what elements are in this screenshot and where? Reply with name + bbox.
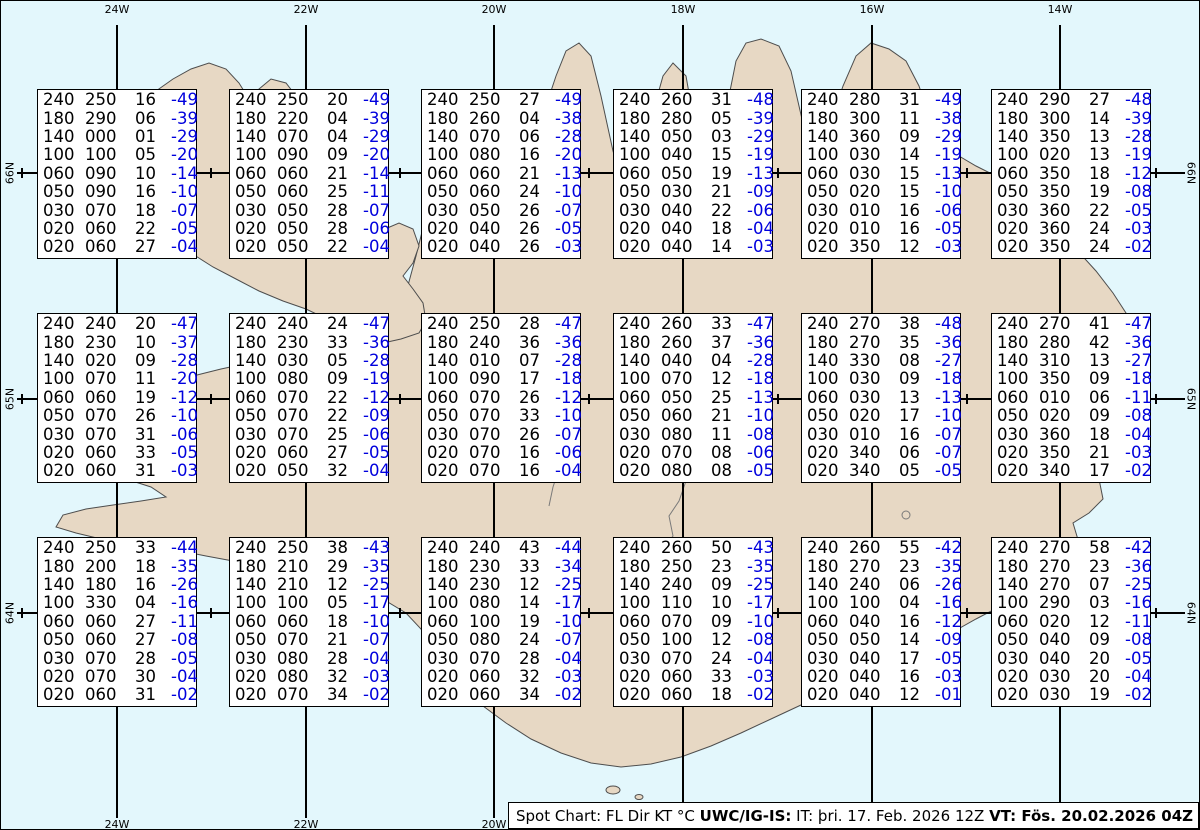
spot-box: 24025038-4318021029-3514021012-251001000… [229, 537, 389, 707]
temp-value: -19 [363, 370, 390, 388]
spot-row: 02006027-05 [235, 444, 383, 462]
kt-value: 13 [1089, 146, 1125, 164]
dir-value: 010 [469, 352, 519, 370]
fl-value: 180 [235, 334, 277, 352]
kt-value: 21 [519, 165, 555, 183]
temp-value: -06 [363, 220, 390, 238]
spot-row: 03005026-07 [427, 202, 575, 220]
temp-value: -12 [171, 389, 198, 407]
fl-value: 030 [807, 202, 849, 220]
kt-value: 26 [519, 389, 555, 407]
kt-value: 04 [711, 352, 747, 370]
fl-value: 060 [427, 165, 469, 183]
spot-row: 14018016-26 [43, 576, 191, 594]
dir-value: 360 [849, 128, 899, 146]
temp-value: -29 [171, 128, 198, 146]
dir-value: 300 [1039, 110, 1089, 128]
kt-value: 09 [327, 146, 363, 164]
dir-value: 060 [469, 165, 519, 183]
fl-value: 020 [997, 668, 1039, 686]
dir-value: 240 [469, 334, 519, 352]
kt-value: 08 [711, 444, 747, 462]
kt-value: 27 [327, 444, 363, 462]
longitude-label-bottom: 20W [482, 818, 507, 830]
temp-value: -16 [1125, 594, 1152, 612]
kt-value: 09 [1089, 407, 1125, 425]
spot-row: 02003020-04 [997, 668, 1145, 686]
temp-value: -19 [935, 146, 962, 164]
longitude-label-top: 20W [482, 3, 507, 16]
spot-row: 24026031-48 [619, 91, 767, 109]
fl-value: 100 [997, 370, 1039, 388]
kt-value: 24 [327, 315, 363, 333]
kt-value: 04 [327, 128, 363, 146]
spot-box: 24024024-4718023033-3614003005-281000800… [229, 313, 389, 483]
kt-value: 18 [1089, 165, 1125, 183]
fl-value: 140 [619, 352, 661, 370]
temp-value: -03 [363, 668, 390, 686]
spot-row: 24025027-49 [427, 91, 575, 109]
fl-value: 050 [619, 631, 661, 649]
caption-segment: IT: þri. 17. Feb. 2026 12Z [791, 807, 989, 825]
temp-value: -20 [171, 370, 198, 388]
dir-value: 350 [1039, 370, 1089, 388]
kt-value: 13 [899, 389, 935, 407]
fl-value: 140 [43, 576, 85, 594]
dir-value: 070 [85, 668, 135, 686]
fl-value: 140 [807, 576, 849, 594]
fl-value: 030 [235, 202, 277, 220]
dir-value: 100 [85, 146, 135, 164]
dir-value: 030 [661, 183, 711, 201]
latitude-label: 65N [4, 388, 17, 410]
spot-row: 14002009-28 [43, 352, 191, 370]
fl-value: 180 [235, 110, 277, 128]
kt-value: 14 [899, 631, 935, 649]
temp-value: -10 [935, 183, 962, 201]
spot-row: 02007030-04 [43, 668, 191, 686]
dir-value: 070 [469, 426, 519, 444]
temp-value: -49 [171, 91, 198, 109]
fl-value: 020 [235, 668, 277, 686]
spot-row: 18027023-35 [807, 558, 955, 576]
spot-row: 06003015-13 [807, 165, 955, 183]
kt-value: 58 [1089, 539, 1125, 557]
temp-value: -06 [555, 444, 582, 462]
spot-row: 24026055-42 [807, 539, 955, 557]
spot-row: 03008028-04 [235, 650, 383, 668]
dir-value: 250 [469, 315, 519, 333]
dir-value: 080 [469, 631, 519, 649]
fl-value: 060 [619, 165, 661, 183]
dir-value: 040 [849, 613, 899, 631]
temp-value: -37 [171, 334, 198, 352]
dir-value: 030 [849, 165, 899, 183]
spot-row: 02006031-03 [43, 462, 191, 480]
fl-value: 240 [43, 539, 85, 557]
dir-value: 060 [661, 668, 711, 686]
temp-value: -11 [171, 613, 198, 631]
kt-value: 11 [135, 370, 171, 388]
spot-row: 18026037-36 [619, 334, 767, 352]
kt-value: 12 [1089, 613, 1125, 631]
temp-value: -47 [747, 315, 774, 333]
temp-value: -20 [363, 146, 390, 164]
temp-value: -25 [747, 576, 774, 594]
spot-row: 06007009-10 [619, 613, 767, 631]
dir-value: 230 [85, 334, 135, 352]
temp-value: -43 [363, 539, 390, 557]
dir-value: 050 [277, 238, 327, 256]
spot-row: 02008032-03 [235, 668, 383, 686]
dir-value: 360 [1039, 426, 1089, 444]
kt-value: 04 [519, 110, 555, 128]
fl-value: 050 [807, 407, 849, 425]
spot-row: 02004014-03 [619, 238, 767, 256]
longitude-label-top: 18W [671, 3, 696, 16]
fl-value: 050 [807, 631, 849, 649]
dir-value: 260 [469, 110, 519, 128]
temp-value: -42 [935, 539, 962, 557]
temp-value: -29 [935, 128, 962, 146]
fl-value: 020 [43, 686, 85, 704]
longitude-label-bottom: 22W [294, 818, 319, 830]
dir-value: 090 [277, 146, 327, 164]
kt-value: 22 [1089, 202, 1125, 220]
caption-segment: Spot Chart: FL Dir KT °C [516, 807, 700, 825]
kt-value: 34 [519, 686, 555, 704]
kt-value: 20 [327, 91, 363, 109]
dir-value: 010 [849, 202, 899, 220]
temp-value: -03 [747, 238, 774, 256]
temp-value: -49 [935, 91, 962, 109]
dir-value: 050 [661, 128, 711, 146]
graticule-tick [1155, 394, 1157, 404]
temp-value: -08 [1125, 183, 1152, 201]
dir-value: 250 [277, 91, 327, 109]
graticule-tick [966, 168, 968, 178]
spot-row: 14035013-28 [997, 128, 1145, 146]
dir-value: 020 [849, 407, 899, 425]
fl-value: 140 [997, 352, 1039, 370]
fl-value: 240 [43, 91, 85, 109]
dir-value: 060 [85, 220, 135, 238]
fl-value: 240 [235, 315, 277, 333]
fl-value: 240 [43, 315, 85, 333]
temp-value: -04 [1125, 426, 1152, 444]
fl-value: 020 [997, 444, 1039, 462]
spot-row: 18027035-36 [807, 334, 955, 352]
spot-row: 06009010-14 [43, 165, 191, 183]
temp-value: -10 [555, 407, 582, 425]
spot-row: 06007026-12 [427, 389, 575, 407]
caption-segment: VT: Fös. 20.02.2026 04Z [989, 807, 1193, 825]
fl-value: 180 [43, 558, 85, 576]
fl-value: 020 [807, 686, 849, 704]
spot-row: 18023010-37 [43, 334, 191, 352]
dir-value: 330 [85, 594, 135, 612]
spot-row: 14027007-25 [997, 576, 1145, 594]
graticule-tick [210, 608, 212, 618]
spot-row: 24025033-44 [43, 539, 191, 557]
temp-value: -10 [555, 613, 582, 631]
kt-value: 26 [135, 407, 171, 425]
kt-value: 31 [711, 91, 747, 109]
spot-row: 18030011-38 [807, 110, 955, 128]
dir-value: 100 [661, 631, 711, 649]
temp-value: -03 [1125, 444, 1152, 462]
kt-value: 42 [1089, 334, 1125, 352]
dir-value: 260 [661, 91, 711, 109]
kt-value: 22 [327, 407, 363, 425]
fl-value: 100 [235, 370, 277, 388]
fl-value: 100 [997, 594, 1039, 612]
graticule-tick [21, 168, 23, 178]
spot-box: 24025016-4918029006-3914000001-291001000… [37, 89, 197, 259]
fl-value: 050 [43, 631, 85, 649]
kt-value: 21 [711, 183, 747, 201]
dir-value: 070 [469, 407, 519, 425]
kt-value: 27 [135, 613, 171, 631]
dir-value: 060 [85, 238, 135, 256]
kt-value: 08 [711, 462, 747, 480]
dir-value: 280 [849, 91, 899, 109]
dir-value: 030 [277, 352, 327, 370]
dir-value: 090 [469, 370, 519, 388]
temp-value: -05 [747, 462, 774, 480]
spot-row: 03036018-04 [997, 426, 1145, 444]
latitude-label: 65N [1185, 388, 1198, 410]
temp-value: -16 [935, 594, 962, 612]
dir-value: 040 [1039, 650, 1089, 668]
temp-value: -13 [555, 165, 582, 183]
fl-value: 060 [427, 389, 469, 407]
spot-row: 02006022-05 [43, 220, 191, 238]
spot-box: 24027038-4818027035-3614033008-271000300… [801, 313, 961, 483]
kt-value: 11 [899, 110, 935, 128]
spot-row: 05006021-10 [619, 407, 767, 425]
fl-value: 180 [619, 558, 661, 576]
dir-value: 260 [661, 315, 711, 333]
spot-row: 06002012-11 [997, 613, 1145, 631]
dir-value: 350 [849, 238, 899, 256]
kt-value: 24 [519, 183, 555, 201]
spot-row: 03004017-05 [807, 650, 955, 668]
caption-segment: (+64 h) [1193, 807, 1200, 825]
spot-row: 05010012-08 [619, 631, 767, 649]
kt-value: 12 [711, 631, 747, 649]
fl-value: 180 [619, 110, 661, 128]
temp-value: -05 [935, 462, 962, 480]
temp-value: -02 [171, 686, 198, 704]
dir-value: 020 [1039, 613, 1089, 631]
temp-value: -29 [363, 128, 390, 146]
spot-row: 10010005-17 [235, 594, 383, 612]
spot-row: 24026050-43 [619, 539, 767, 557]
spot-row: 18024036-36 [427, 334, 575, 352]
kt-value: 28 [519, 315, 555, 333]
spot-row: 03001016-07 [807, 426, 955, 444]
kt-value: 23 [1089, 558, 1125, 576]
spot-row: 02003019-02 [997, 686, 1145, 704]
temp-value: -28 [555, 352, 582, 370]
fl-value: 140 [235, 128, 277, 146]
spot-row: 02004018-04 [619, 220, 767, 238]
temp-value: -28 [747, 352, 774, 370]
spot-row: 02007016-06 [427, 444, 575, 462]
temp-value: -28 [363, 352, 390, 370]
kt-value: 09 [711, 576, 747, 594]
spot-row: 06006021-13 [427, 165, 575, 183]
temp-value: -47 [363, 315, 390, 333]
kt-value: 16 [899, 202, 935, 220]
graticule-tick [210, 168, 212, 178]
spot-row: 10010004-16 [807, 594, 955, 612]
temp-value: -07 [363, 202, 390, 220]
spot-row: 24025028-47 [427, 315, 575, 333]
kt-value: 21 [1089, 444, 1125, 462]
kt-value: 26 [519, 202, 555, 220]
fl-value: 020 [807, 668, 849, 686]
dir-value: 340 [849, 444, 899, 462]
kt-value: 25 [711, 389, 747, 407]
fl-value: 020 [619, 462, 661, 480]
temp-value: -34 [555, 558, 582, 576]
temp-value: -48 [747, 91, 774, 109]
kt-value: 19 [519, 613, 555, 631]
spot-box: 24025028-4718024036-3614001007-281000901… [421, 313, 581, 483]
dir-value: 070 [469, 444, 519, 462]
spot-row: 24025038-43 [235, 539, 383, 557]
graticule-tick [21, 608, 23, 618]
temp-value: -18 [555, 370, 582, 388]
kt-value: 15 [899, 183, 935, 201]
fl-value: 020 [427, 220, 469, 238]
temp-value: -36 [935, 334, 962, 352]
spot-row: 02001016-05 [807, 220, 955, 238]
temp-value: -47 [555, 315, 582, 333]
kt-value: 30 [135, 668, 171, 686]
spot-row: 02007008-06 [619, 444, 767, 462]
kt-value: 37 [711, 334, 747, 352]
dir-value: 000 [85, 128, 135, 146]
kt-value: 09 [1089, 370, 1125, 388]
latitude-label: 66N [1185, 162, 1198, 184]
spot-row: 18021029-35 [235, 558, 383, 576]
dir-value: 230 [277, 334, 327, 352]
dir-value: 250 [85, 539, 135, 557]
temp-value: -19 [1125, 146, 1152, 164]
dir-value: 010 [849, 220, 899, 238]
kt-value: 07 [519, 352, 555, 370]
dir-value: 350 [1039, 165, 1089, 183]
dir-value: 340 [1039, 462, 1089, 480]
spot-box: 24027041-4718028042-3614031013-271003500… [991, 313, 1151, 483]
spot-row: 18030014-39 [997, 110, 1145, 128]
fl-value: 060 [43, 165, 85, 183]
spot-row: 05006024-10 [427, 183, 575, 201]
spot-row: 02034006-07 [807, 444, 955, 462]
kt-value: 12 [711, 370, 747, 388]
kt-value: 23 [711, 558, 747, 576]
spot-row: 06006021-14 [235, 165, 383, 183]
temp-value: -05 [935, 650, 962, 668]
spot-row: 14005003-29 [619, 128, 767, 146]
fl-value: 140 [807, 352, 849, 370]
longitude-label-top: 14W [1048, 3, 1073, 16]
dir-value: 080 [661, 462, 711, 480]
temp-value: -05 [363, 444, 390, 462]
spot-row: 03007026-07 [427, 426, 575, 444]
dir-value: 040 [661, 220, 711, 238]
fl-value: 100 [43, 146, 85, 164]
kt-value: 28 [327, 202, 363, 220]
kt-value: 33 [135, 539, 171, 557]
kt-value: 28 [135, 650, 171, 668]
spot-row: 03007028-05 [43, 650, 191, 668]
kt-value: 10 [135, 334, 171, 352]
spot-row: 14003005-28 [235, 352, 383, 370]
fl-value: 020 [427, 686, 469, 704]
dir-value: 100 [277, 594, 327, 612]
kt-value: 27 [1089, 91, 1125, 109]
spot-row: 02005028-06 [235, 220, 383, 238]
spot-row: 18023033-34 [427, 558, 575, 576]
caption-segment: UWC/IG-IS: [700, 807, 792, 825]
fl-value: 020 [997, 238, 1039, 256]
spot-row: 24025016-49 [43, 91, 191, 109]
fl-value: 020 [807, 444, 849, 462]
temp-value: -05 [1125, 202, 1152, 220]
kt-value: 33 [519, 407, 555, 425]
fl-value: 140 [997, 576, 1039, 594]
spot-row: 03007031-06 [43, 426, 191, 444]
temp-value: -07 [935, 426, 962, 444]
dir-value: 070 [469, 650, 519, 668]
graticule-tick [966, 394, 968, 404]
temp-value: -03 [555, 238, 582, 256]
fl-value: 050 [997, 631, 1039, 649]
fl-value: 020 [619, 238, 661, 256]
fl-value: 020 [43, 462, 85, 480]
fl-value: 140 [619, 128, 661, 146]
spot-row: 05002009-08 [997, 407, 1145, 425]
temp-value: -12 [1125, 165, 1152, 183]
fl-value: 240 [807, 315, 849, 333]
dir-value: 240 [469, 539, 519, 557]
dir-value: 040 [849, 686, 899, 704]
spot-row: 10007012-18 [619, 370, 767, 388]
temp-value: -02 [1125, 238, 1152, 256]
temp-value: -07 [555, 631, 582, 649]
dir-value: 050 [849, 631, 899, 649]
fl-value: 180 [807, 334, 849, 352]
spot-row: 03001016-06 [807, 202, 955, 220]
dir-value: 070 [661, 370, 711, 388]
graticule-tick [399, 608, 401, 618]
fl-value: 060 [43, 613, 85, 631]
dir-value: 300 [849, 110, 899, 128]
fl-value: 030 [619, 650, 661, 668]
dir-value: 010 [849, 426, 899, 444]
spot-row: 18022004-39 [235, 110, 383, 128]
fl-value: 140 [427, 352, 469, 370]
kt-value: 05 [327, 594, 363, 612]
spot-row: 18023033-36 [235, 334, 383, 352]
spot-row: 14001007-28 [427, 352, 575, 370]
kt-value: 13 [1089, 352, 1125, 370]
kt-value: 36 [519, 334, 555, 352]
